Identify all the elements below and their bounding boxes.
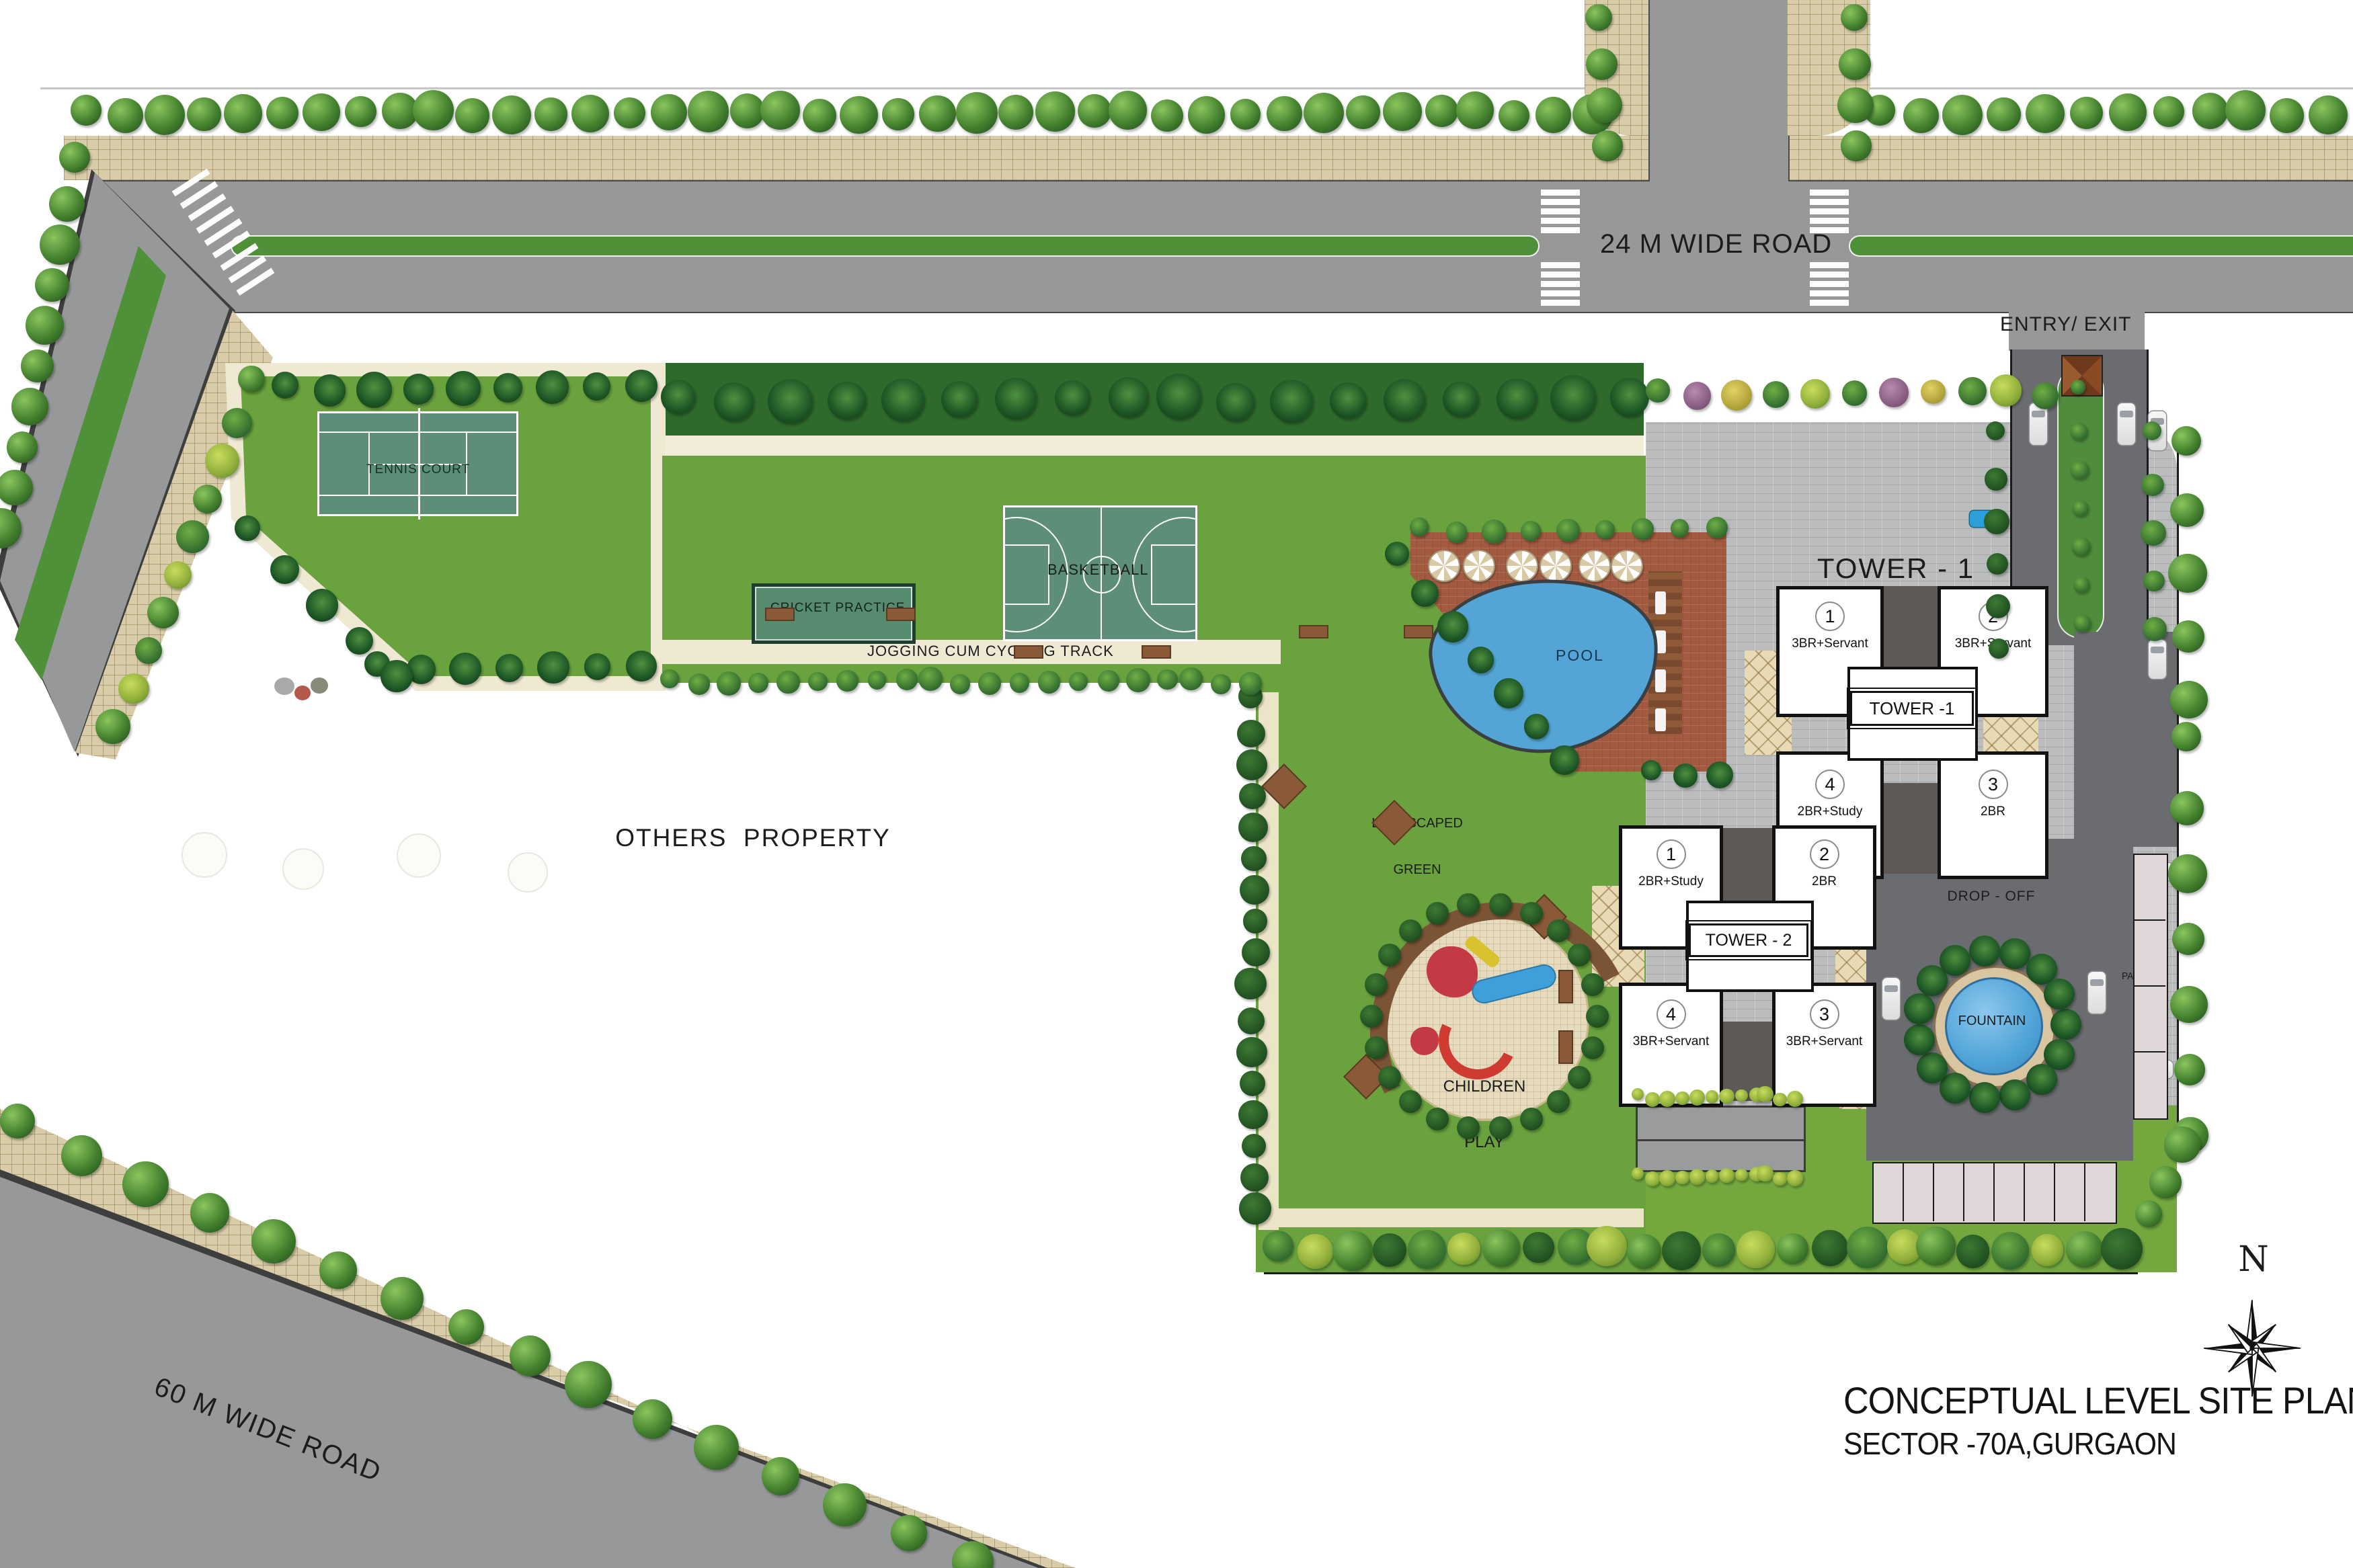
tree-icon — [1904, 1024, 1935, 1055]
tree-icon — [1662, 1231, 1701, 1270]
rock-icon — [274, 677, 294, 695]
tree-icon — [1243, 909, 1267, 933]
car-icon — [2030, 403, 2047, 445]
unit-number: 1 — [1657, 839, 1686, 869]
tree-icon — [717, 671, 741, 696]
road-median — [1850, 237, 2353, 255]
unit-number: 3 — [1810, 999, 1839, 1029]
tree-icon — [840, 96, 878, 134]
car-icon — [2149, 640, 2166, 679]
road-24m-vertical — [1648, 0, 1790, 181]
tree-icon — [455, 98, 489, 132]
stall-divider — [1903, 1162, 1904, 1221]
tree-icon — [176, 520, 209, 553]
tree-icon — [314, 374, 346, 406]
tree-icon — [224, 94, 263, 133]
tree-icon — [40, 224, 80, 265]
pool-lounger — [1655, 591, 1666, 614]
tree-icon — [1706, 761, 1733, 788]
tree-icon — [776, 671, 799, 694]
tree-icon — [1520, 902, 1543, 925]
umbrella-icon — [1428, 550, 1460, 582]
tree-icon — [1800, 379, 1831, 409]
tree-icon — [1706, 1090, 1719, 1104]
tree-icon — [108, 98, 143, 134]
tree-icon — [1568, 1066, 1591, 1089]
tree-icon — [11, 388, 49, 425]
tree-icon — [2164, 1126, 2200, 1162]
tree-icon — [21, 349, 54, 382]
tree-icon — [941, 381, 978, 417]
tree-icon — [626, 651, 656, 681]
tree-icon — [381, 1277, 424, 1320]
umbrella-icon — [1506, 550, 1538, 582]
tree-icon — [2174, 1054, 2206, 1085]
tree-icon — [1903, 98, 1939, 134]
tree-icon — [35, 268, 69, 302]
tree-icon — [2172, 923, 2205, 956]
children-play-line2: PLAY — [1431, 1133, 1538, 1152]
unit-number: 4 — [1657, 999, 1686, 1029]
tree-icon — [1550, 375, 1596, 421]
tree-icon — [193, 485, 222, 513]
tower1-wing-3: 3 2BR — [1938, 751, 2048, 879]
tree-icon — [651, 94, 687, 130]
title-line2: SECTOR -70A,GURGAON — [1843, 1426, 2176, 1462]
tree-icon — [147, 597, 179, 628]
tree-icon — [1437, 611, 1469, 643]
zebra-stripe — [1810, 290, 1849, 296]
track-bench — [1299, 625, 1328, 638]
tree-icon — [2143, 617, 2167, 641]
tree-icon — [135, 637, 162, 664]
tree-icon — [625, 370, 657, 402]
tree-icon — [694, 1425, 739, 1470]
tree-icon — [1987, 97, 2021, 132]
tree-icon — [403, 374, 434, 404]
north-sidewalk-left — [64, 136, 1652, 180]
tree-icon — [1378, 944, 1401, 966]
tree-icon — [1985, 468, 2007, 490]
tree-icon — [534, 97, 567, 130]
tree-icon — [1267, 96, 1302, 132]
tree-icon — [1447, 1233, 1480, 1266]
basketball-label: BASKETBALL — [1047, 561, 1149, 578]
tree-icon — [448, 1309, 484, 1345]
tree-icon — [1330, 382, 1367, 419]
tree-icon — [1689, 1169, 1706, 1185]
tree-icon — [493, 373, 522, 402]
tree-icon — [1240, 1163, 1269, 1192]
tree-icon — [7, 431, 38, 462]
pool-lounger — [1655, 708, 1666, 731]
tree-icon — [95, 709, 130, 744]
tree-icon — [235, 515, 260, 540]
play-equipment-red — [1427, 946, 1478, 997]
zebra-stripe — [1541, 227, 1580, 233]
tree-icon — [2225, 90, 2266, 130]
tree-icon — [2071, 537, 2090, 556]
tree-icon — [1987, 553, 2008, 575]
tree-icon — [565, 1361, 611, 1407]
zebra-stripe — [1541, 218, 1580, 224]
zebra-stripe — [1810, 190, 1849, 196]
tree-icon — [2026, 1064, 2057, 1095]
tree-icon — [1547, 1090, 1570, 1113]
road-24m-label: 24 M WIDE ROAD — [1600, 229, 1832, 259]
tree-icon — [1240, 1071, 1265, 1096]
tree-icon — [49, 186, 85, 222]
tree-icon — [1216, 383, 1254, 421]
tree-icon — [2168, 554, 2207, 593]
tree-icon — [828, 382, 865, 419]
tree-icon — [660, 669, 678, 688]
tree-icon — [919, 95, 956, 132]
stall-divider — [2133, 985, 2165, 987]
compass-north-letter: N — [2227, 1240, 2280, 1280]
tree-icon — [2172, 620, 2205, 653]
tree-icon — [748, 673, 768, 693]
tree-icon — [1683, 382, 1711, 409]
amenity-lane-divider — [1638, 1139, 1804, 1141]
tree-icon — [1010, 673, 1029, 692]
tree-icon — [1587, 1226, 1627, 1266]
tree-icon — [1482, 1229, 1520, 1267]
stall-divider — [2054, 1162, 2055, 1221]
tree-icon — [536, 370, 569, 403]
tree-icon — [537, 651, 569, 683]
tree-icon — [1263, 1231, 1293, 1262]
tree-icon — [1055, 380, 1090, 415]
tree-icon — [1675, 1091, 1689, 1106]
zebra-stripe — [1810, 218, 1849, 224]
tree-icon — [1969, 936, 2000, 966]
tree-icon — [1489, 893, 1512, 916]
tree-icon — [1812, 1230, 1848, 1266]
tree-icon — [510, 1335, 551, 1376]
tree-icon — [1408, 1230, 1447, 1269]
tree-icon — [1675, 1171, 1689, 1185]
tree-icon — [1038, 671, 1060, 693]
tree-icon — [1536, 97, 1571, 132]
tree-icon — [823, 1483, 866, 1526]
tree-icon — [1839, 48, 1870, 80]
tree-icon — [122, 1161, 169, 1208]
rock-icon — [294, 686, 311, 700]
tree-icon — [1069, 672, 1088, 691]
tree-icon — [270, 555, 299, 584]
garden-bench — [1558, 1030, 1573, 1064]
tree-icon — [2192, 93, 2228, 128]
zebra-stripe — [1810, 262, 1849, 268]
tree-icon — [1586, 1005, 1609, 1028]
tree-icon — [2149, 1166, 2181, 1198]
tree-icon — [1547, 919, 1570, 942]
tree-icon — [61, 1135, 102, 1176]
unit-type: 2BR+Study — [1622, 874, 1720, 889]
tree-icon — [1078, 94, 1111, 128]
tree-icon — [2170, 681, 2208, 718]
tree-icon — [836, 670, 859, 692]
tree-icon — [1673, 764, 1697, 787]
tree-icon — [1969, 1082, 2000, 1113]
amenity-court — [1636, 1106, 1806, 1172]
tennis-court-label: TENNIS COURT — [366, 462, 470, 477]
pool-label: POOL — [1540, 647, 1620, 664]
tree-icon — [1990, 374, 2022, 406]
tree-icon — [762, 1457, 799, 1495]
tree-icon — [1426, 1108, 1449, 1130]
tree-icon — [2171, 722, 2201, 751]
children-play-line1: CHILDREN — [1431, 1077, 1538, 1096]
tree-icon — [1645, 1092, 1660, 1107]
tree-icon — [1384, 379, 1425, 421]
stall-divider — [1933, 1162, 1934, 1221]
tree-icon — [1179, 667, 1203, 691]
tree-icon — [1956, 1235, 1990, 1268]
tree-icon — [2170, 493, 2204, 528]
tree-icon — [1737, 1231, 1774, 1268]
stall-divider — [2133, 1051, 2165, 1053]
tree-icon — [1383, 92, 1422, 131]
parking-stall-area — [1872, 1162, 2117, 1224]
stall-divider — [1963, 1162, 1964, 1221]
tree-icon — [1446, 522, 1467, 542]
tree-icon — [381, 660, 412, 692]
tree-icon — [1098, 670, 1119, 692]
tree-icon — [1482, 520, 1506, 544]
tree-icon — [1399, 919, 1422, 942]
tree-icon — [1239, 1192, 1271, 1224]
unit-type: 3BR+Servant — [1622, 1034, 1720, 1049]
tree-icon — [1241, 846, 1267, 872]
tree-icon — [2050, 1009, 2081, 1040]
stall-divider — [2133, 919, 2165, 921]
stall-divider — [1993, 1162, 1995, 1221]
tree-icon — [633, 1399, 672, 1439]
compass-rose-icon — [2200, 1296, 2305, 1401]
tree-icon — [1109, 377, 1148, 417]
tree-icon — [1410, 518, 1428, 536]
tree-icon — [1581, 973, 1604, 996]
tree-icon — [2270, 98, 2304, 132]
unit-type: 2BR — [1776, 874, 1873, 889]
tree-icon — [896, 669, 918, 690]
tree-icon — [2171, 426, 2201, 456]
lawn-path-bottom — [1277, 1208, 1644, 1227]
tree-icon — [1917, 1053, 1948, 1083]
tree-icon — [26, 306, 65, 345]
tree-icon — [1942, 95, 1983, 135]
tree-icon — [1035, 91, 1075, 131]
tree-icon — [1157, 669, 1178, 690]
tree-icon — [1242, 938, 1270, 966]
tree-icon — [1592, 130, 1622, 161]
tree-icon — [1842, 380, 1868, 406]
tree-icon — [1632, 518, 1654, 540]
tree-icon — [571, 95, 609, 132]
tree-icon — [1787, 1170, 1803, 1186]
tree-icon — [1721, 380, 1753, 411]
tree-icon — [1610, 378, 1649, 417]
tree-icon — [950, 674, 970, 694]
tree-icon — [614, 97, 645, 129]
north-sidewalk-right — [1787, 136, 2353, 180]
tree-icon — [1443, 382, 1478, 417]
tower1-court-shadow — [1876, 783, 1940, 874]
tree-icon — [1520, 1108, 1543, 1130]
tree-icon — [2073, 577, 2089, 592]
tree-icon — [2109, 93, 2147, 131]
zebra-stripe — [1810, 199, 1849, 205]
tree-icon — [2143, 571, 2165, 592]
tower1-court-shadow — [1876, 586, 1940, 680]
tree-icon — [714, 382, 754, 422]
tree-icon — [1385, 542, 1409, 566]
tree-icon — [2101, 1228, 2143, 1270]
site-plan-canvas: 24 M WIDE ROAD 60 M WIDE ROAD JOGGING CU… — [0, 0, 2353, 1568]
tree-icon — [1646, 378, 1670, 403]
tower2-core-label: TOWER - 2 — [1689, 923, 1808, 957]
tree-icon — [2153, 96, 2184, 127]
tree-icon — [1237, 720, 1265, 747]
tree-icon — [2026, 94, 2065, 133]
unit-number: 4 — [1815, 770, 1845, 799]
tree-icon — [71, 95, 102, 126]
tree-icon — [1521, 521, 1541, 541]
tree-icon — [303, 93, 340, 131]
tree-icon — [1689, 1089, 1706, 1106]
tower1-heading: TOWER - 1 — [1788, 552, 2003, 585]
tree-icon — [1958, 377, 1987, 405]
tree-icon — [356, 372, 392, 407]
tree-icon — [1879, 378, 1908, 407]
tree-icon — [2070, 97, 2103, 130]
tree-icon — [1238, 1007, 1265, 1034]
tree-icon — [1457, 893, 1480, 916]
zebra-stripe — [1541, 208, 1580, 214]
zebra-stripe — [1810, 300, 1849, 306]
tree-icon — [1332, 1231, 1373, 1271]
tree-icon — [1239, 672, 1262, 695]
unit-number: 1 — [1815, 602, 1845, 631]
tree-icon — [1489, 1116, 1512, 1139]
unit-type: 3BR+Servant — [1780, 636, 1880, 651]
tree-icon — [1550, 745, 1579, 774]
tree-icon — [760, 91, 800, 130]
tree-icon — [803, 99, 836, 132]
car-icon — [1882, 978, 1900, 1020]
zebra-stripe — [1810, 227, 1849, 233]
tree-icon — [2032, 382, 2059, 409]
tree-icon — [1360, 1005, 1383, 1028]
tree-icon — [1719, 1089, 1734, 1104]
entry-exit-label: ENTRY/ EXIT — [2000, 313, 2131, 337]
unit-number: 3 — [1979, 770, 2008, 799]
ghost-tree-icon — [182, 832, 227, 878]
landscaped-green-line2: GREEN — [1363, 862, 1471, 878]
tree-icon — [1497, 378, 1537, 419]
tree-icon — [1304, 93, 1344, 133]
tree-icon — [1556, 519, 1579, 542]
tree-icon — [495, 654, 523, 682]
tree-icon — [881, 378, 924, 421]
tree-icon — [730, 93, 765, 128]
tree-icon — [1586, 48, 1618, 80]
tree-icon — [346, 627, 373, 655]
tree-icon — [145, 95, 185, 135]
tree-icon — [1456, 91, 1494, 129]
tree-icon — [1238, 1100, 1268, 1130]
tree-icon — [1847, 1227, 1888, 1268]
zebra-stripe — [1541, 281, 1580, 287]
tree-icon — [306, 589, 339, 622]
tree-icon — [1425, 95, 1458, 128]
tree-icon — [868, 671, 887, 690]
tree-icon — [1706, 1169, 1719, 1183]
tree-icon — [1787, 1091, 1803, 1107]
tree-icon — [1921, 380, 1945, 404]
others-property-label: OTHERS PROPERTY — [578, 824, 928, 853]
unit-type: 2BR+Study — [1780, 804, 1880, 819]
pool-lounger — [1655, 669, 1666, 692]
tree-icon — [1763, 381, 1789, 407]
tree-icon — [2141, 474, 2163, 496]
tree-icon — [1587, 87, 1622, 123]
tree-icon — [998, 95, 1033, 130]
tree-icon — [1156, 374, 1201, 419]
tree-icon — [492, 95, 531, 134]
tree-icon — [1841, 130, 1871, 161]
tree-icon — [583, 372, 610, 400]
zebra-stripe — [1810, 208, 1849, 214]
site-boundary-right — [2177, 430, 2179, 1149]
tree-icon — [1240, 875, 1269, 904]
tree-icon — [1702, 1233, 1735, 1266]
ghost-tree-icon — [508, 852, 548, 893]
zebra-stripe — [1810, 272, 1849, 278]
ghost-tree-icon — [282, 848, 324, 890]
tree-icon — [1706, 517, 1728, 538]
tree-icon — [2032, 1234, 2064, 1266]
unit-type: 2BR — [1941, 804, 2045, 819]
tree-icon — [446, 371, 480, 405]
tower1-core-label: TOWER -1 — [1850, 691, 1974, 726]
tree-icon — [1494, 678, 1524, 708]
site-boundary-bottom — [1264, 1272, 2138, 1274]
umbrella-icon — [1579, 550, 1611, 582]
garden-bench — [1558, 970, 1573, 1003]
tree-icon — [1645, 1171, 1660, 1186]
tree-icon — [808, 672, 828, 692]
rock-icon — [311, 677, 328, 694]
tree-icon — [661, 380, 695, 414]
tree-icon — [584, 653, 611, 680]
tree-icon — [1365, 1036, 1388, 1059]
tree-icon — [2170, 791, 2204, 825]
tree-icon — [1236, 1037, 1267, 1067]
tree-icon — [2066, 1231, 2103, 1268]
tree-icon — [688, 673, 709, 694]
track-bench — [765, 608, 795, 621]
umbrella-icon — [1611, 550, 1643, 582]
tree-icon — [1126, 668, 1150, 692]
zebra-stripe — [1541, 290, 1580, 296]
tree-icon — [345, 96, 376, 127]
tree-icon — [205, 444, 239, 478]
umbrella-icon — [1463, 550, 1495, 582]
umbrella-icon — [1540, 550, 1572, 582]
